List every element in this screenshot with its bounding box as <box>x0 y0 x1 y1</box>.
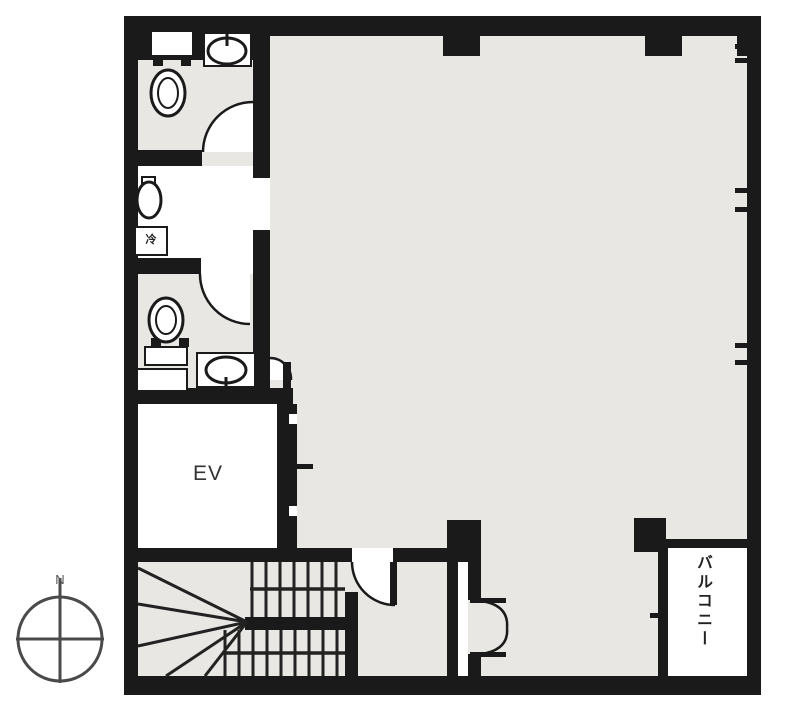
refrigerator-label: 冷 <box>134 231 168 247</box>
double-door-icon <box>481 601 507 628</box>
stair-winder <box>138 568 247 676</box>
toilet-icon <box>149 298 183 342</box>
double-door-icon <box>481 628 507 654</box>
compass-north-label: N <box>55 572 64 587</box>
balcony-label: バルコニー <box>694 554 710 680</box>
urinal-icon <box>137 182 161 218</box>
compass-icon <box>16 578 104 683</box>
fixtures-layer: N <box>0 0 787 707</box>
elevator-label: EV <box>178 462 238 486</box>
floor-plan: N EV バルコニー 冷 <box>0 0 787 707</box>
toilet-icon <box>151 70 185 116</box>
